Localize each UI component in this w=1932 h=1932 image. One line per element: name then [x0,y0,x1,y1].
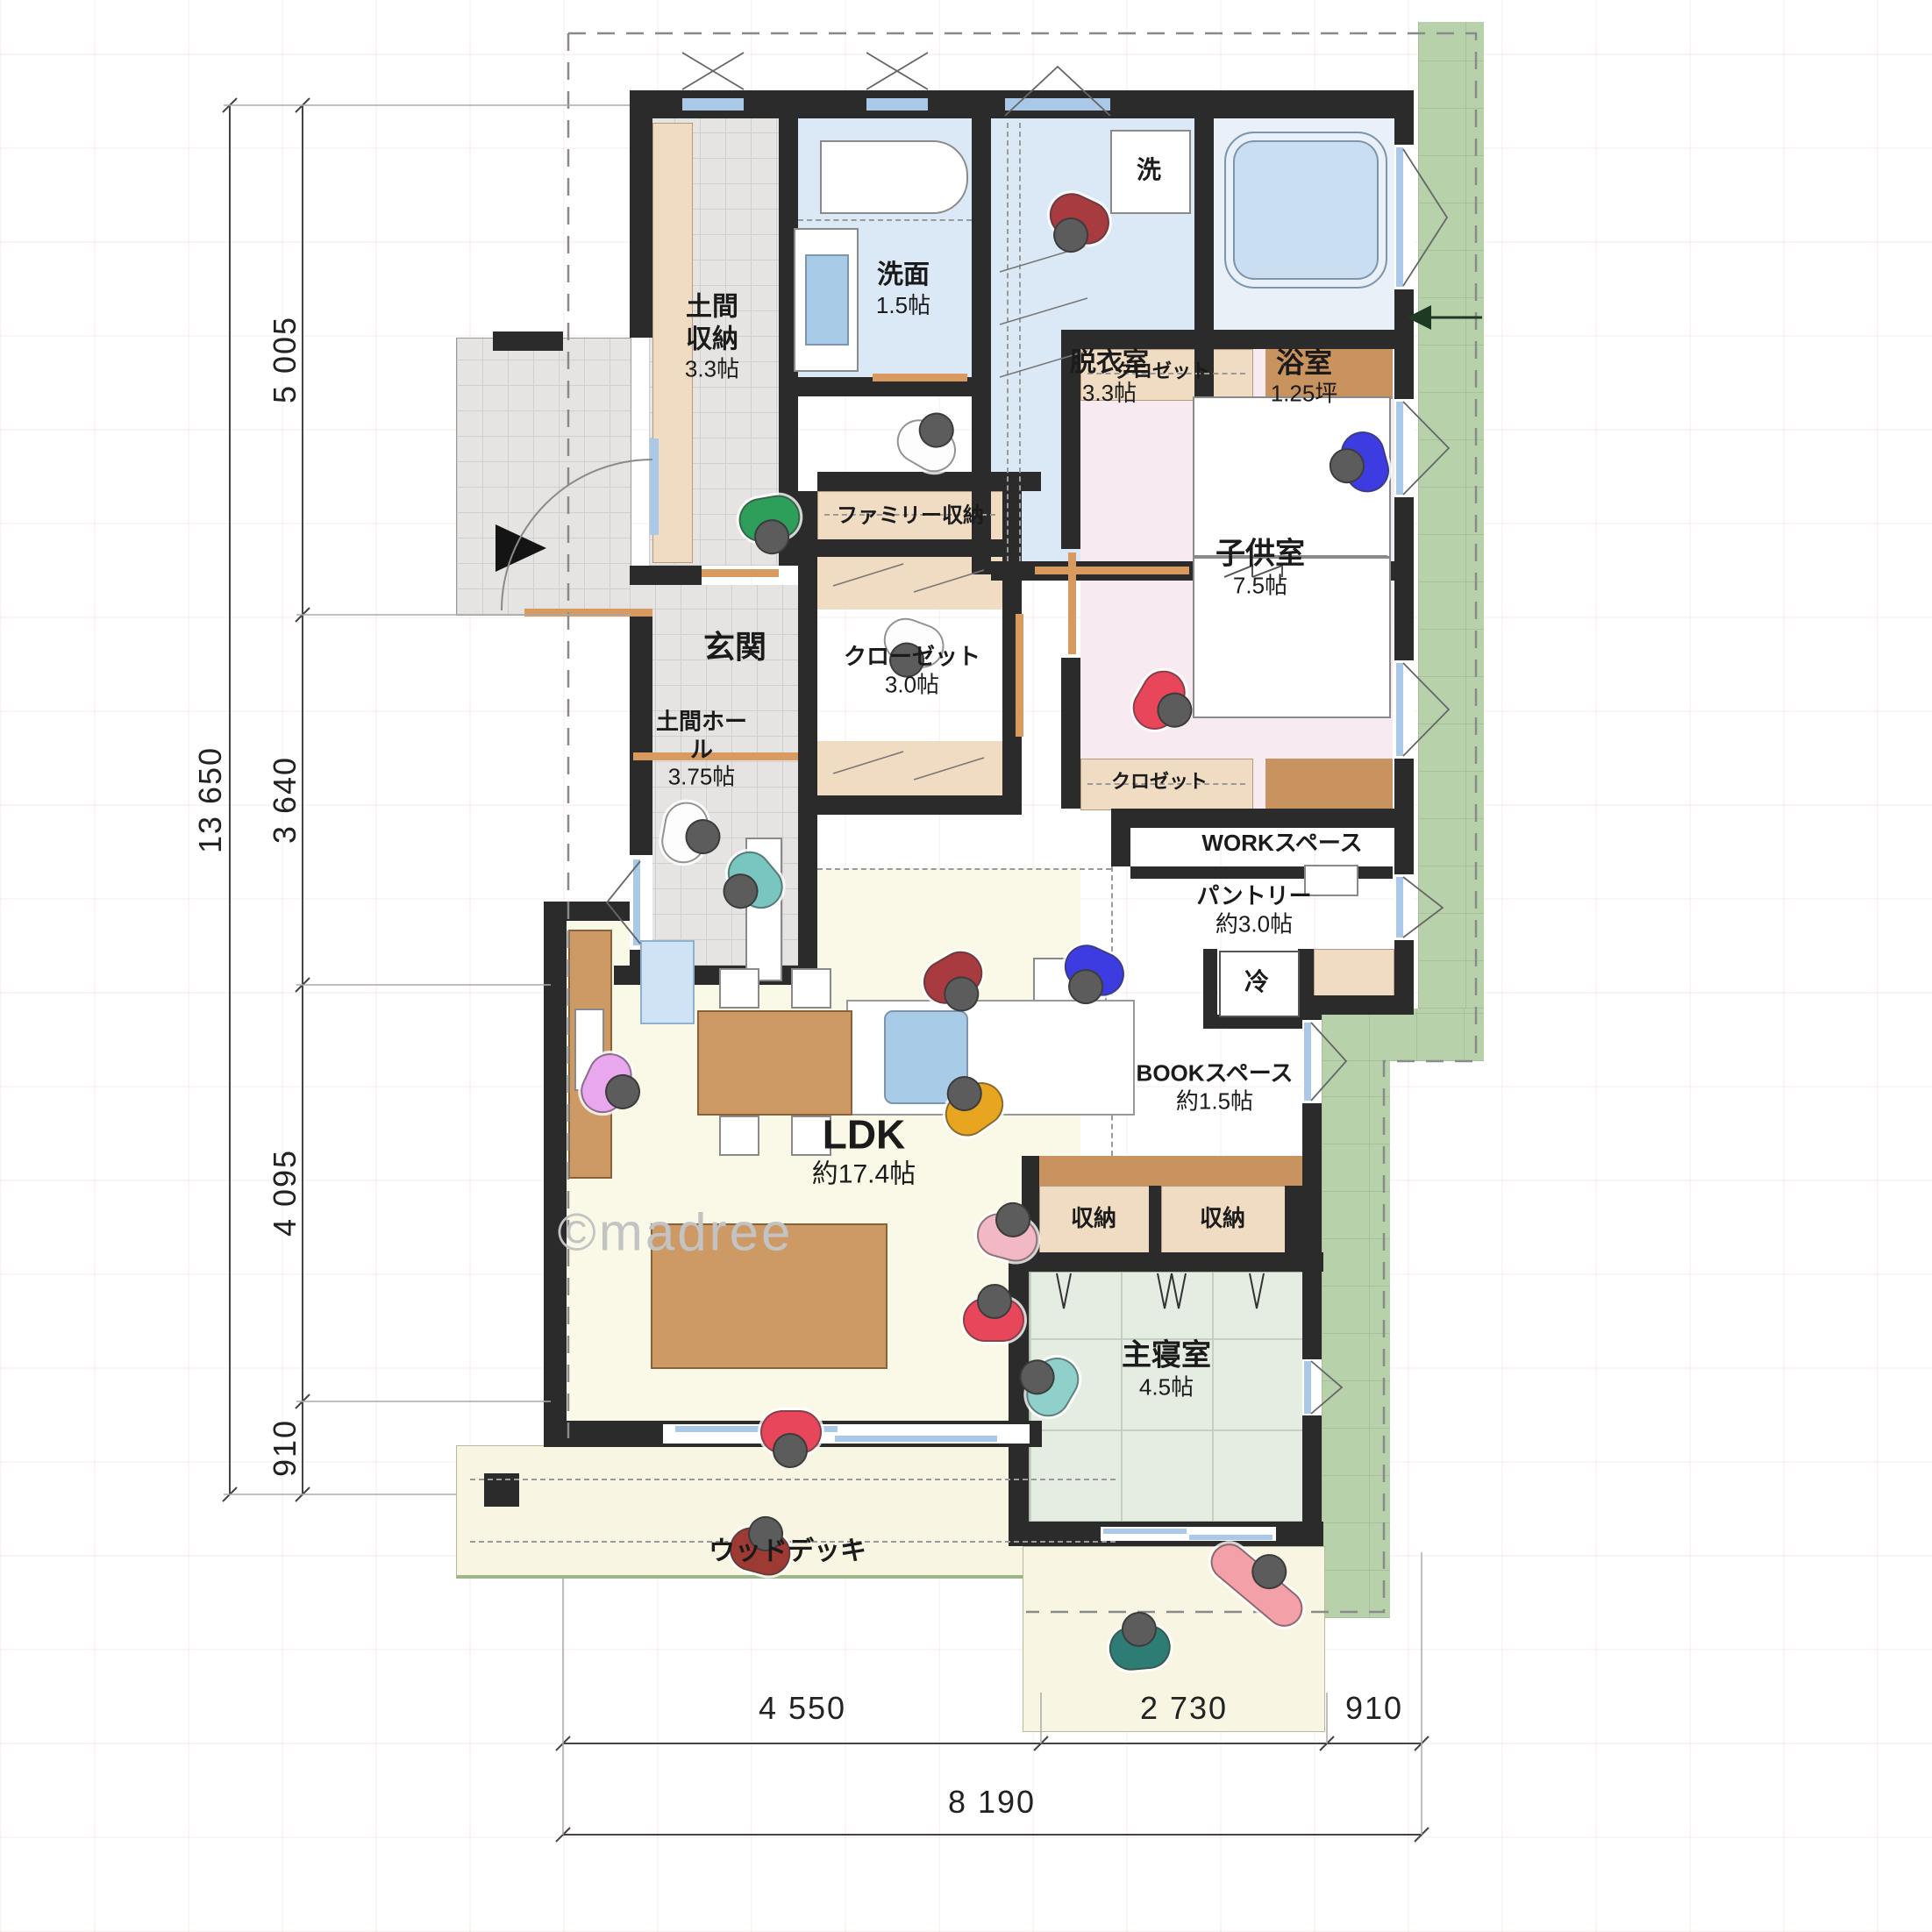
person-figure [761,1412,823,1468]
wall-segment [1149,1186,1161,1252]
watermark: ©madree [558,1202,794,1263]
dim-left-seg: 3 640 [267,756,303,844]
person-figure [737,493,807,559]
window-glass [1396,663,1403,756]
dim-bottom-seg: 910 [1345,1690,1403,1727]
entrance-porch [456,338,631,616]
label-kids-closet-n: クロゼット [1114,360,1210,384]
garden-block-southeast [1322,1009,1484,1061]
window [682,98,744,111]
window-glass [1304,1361,1311,1414]
garden-strip-southeast [1322,1061,1390,1618]
laundry-counter [820,140,968,214]
dining-chair [719,1116,759,1156]
screen-dashed [1019,123,1021,561]
storage-back-band [1022,1156,1302,1186]
wall-segment [1111,809,1414,828]
window-glass [633,859,640,945]
room-label-wood-deck: ウッドデッキ [709,1536,866,1569]
wall-segment [1061,658,1080,809]
label-storage-east: 収納 [1200,1205,1245,1233]
room-label-senmen: 洗面1.5帖 [876,260,930,319]
room-label-ldk: LDK約17.4帖 [812,1110,916,1192]
dim-left-total: 13 650 [192,746,229,853]
deck-dashed [470,1479,1116,1480]
wall-segment [817,539,1022,557]
pantry-shelf [1314,949,1394,997]
dim-left-seg: 910 [267,1419,303,1477]
window-glass [1396,147,1403,287]
person-figure [659,798,725,868]
wall-segment [1061,330,1414,349]
room-label-doma-hall: 土間ホール3.75帖 [653,708,750,791]
vanity-sink [805,254,849,346]
room-label-kids: 子供室7.5帖 [1216,536,1305,600]
dim-bottom-total: 8 190 [948,1784,1036,1821]
closet-rod-south [817,741,1002,795]
entrance-arrow-icon [495,524,546,572]
wall-segment [1298,949,1314,1015]
window-glass [1103,1529,1187,1534]
room-label-closet: クローゼット3.0帖 [844,643,980,698]
dim-bottom-seg: 2 730 [1140,1690,1228,1727]
window-glass [1396,402,1403,495]
room-label-pantry: パントリー約3.0帖 [1196,882,1311,937]
dim-left-seg: 4 095 [267,1149,303,1237]
wall-segment [798,491,817,985]
bathtub [1224,132,1387,289]
boundary-dashed [817,868,1111,870]
wall-segment [1009,1252,1323,1272]
wall-segment [493,332,563,351]
wall-segment [817,795,1022,815]
dining-table [697,1010,852,1116]
sliding-door [702,569,779,577]
boundary-dashed [798,219,972,221]
dim-left-seg: 5 005 [267,316,303,403]
kids-headboard-south [1265,759,1393,809]
room-label-genkan: 玄関 [703,628,766,667]
room-label-doma-storage: 土間収納3.3帖 [679,292,745,384]
person-figure [889,399,971,478]
wall-segment [630,90,652,338]
window [866,98,928,111]
dining-chair [719,968,759,1009]
label-washer: 洗 [1137,155,1161,185]
window-glass [835,1436,997,1442]
sliding-door [1016,614,1023,737]
wall-segment [544,902,567,1447]
work-desk-shelf [1304,865,1358,896]
sliding-door [1035,567,1189,574]
person-figure [962,1284,1023,1340]
dim-bottom-seg: 4 550 [759,1690,846,1727]
window-glass [1304,1023,1311,1101]
dining-chair [791,968,831,1009]
screen-dashed [1007,123,1009,561]
garden-strip-east [1418,22,1484,1009]
window-glass [1396,877,1403,937]
sliding-door [1068,553,1076,654]
wall-segment [1285,1186,1302,1252]
front-door [524,609,652,617]
room-label-family-storage: ファミリー収納 [837,503,984,528]
room-label-work: WORKスペース [1201,830,1362,858]
label-fridge: 冷 [1244,967,1269,997]
floor-plan-canvas: 土間収納3.3帖 洗面1.5帖 脱衣室3.3帖 浴室1.25坪 洗 玄関 ファミ… [0,0,1932,1932]
room-label-bath: 浴室1.25坪 [1271,346,1338,409]
label-storage-west: 収納 [1071,1205,1116,1233]
window [1005,98,1110,111]
person-figure [1105,1609,1171,1671]
wall-segment [972,90,991,574]
wall-segment [630,566,702,585]
wall-segment [1111,809,1130,866]
label-kids-closet-s: クロゼット [1111,771,1208,795]
room-label-master: 主寝室4.5帖 [1122,1337,1211,1401]
room-label-book: BOOKスペース約1.5帖 [1137,1059,1294,1115]
sliding-door [873,374,967,381]
wall-segment [1314,995,1412,1015]
window-glass [1189,1535,1273,1540]
doma-hall-mat [640,940,695,1024]
window [650,438,659,535]
